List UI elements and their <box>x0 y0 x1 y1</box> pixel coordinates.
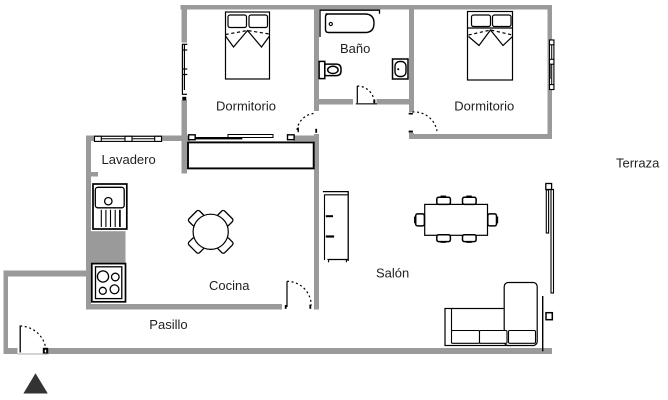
svg-text:Baño: Baño <box>340 41 370 56</box>
svg-text:Dormitorio: Dormitorio <box>216 99 276 114</box>
svg-text:Cocina: Cocina <box>209 278 250 293</box>
svg-text:Dormitorio: Dormitorio <box>454 99 514 114</box>
svg-text:Lavadero: Lavadero <box>102 152 156 167</box>
svg-text:Pasillo: Pasillo <box>149 317 187 332</box>
svg-text:Terraza: Terraza <box>616 155 660 170</box>
svg-text:Salón: Salón <box>376 266 409 281</box>
